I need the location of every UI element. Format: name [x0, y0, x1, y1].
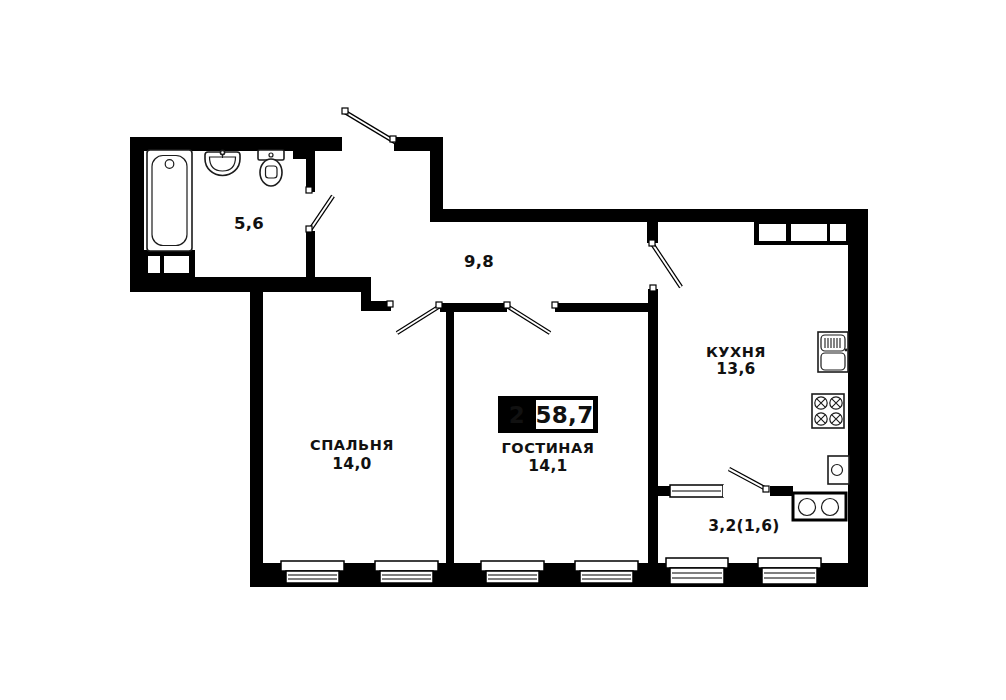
room-count: 2	[509, 402, 525, 428]
door-hinge	[306, 226, 312, 232]
bedroom-name: СПАЛЬНЯ	[310, 437, 394, 453]
bedroom-door	[387, 301, 442, 333]
window	[575, 561, 638, 583]
kitchen-balcony-window	[670, 485, 770, 497]
window	[375, 561, 438, 583]
vent-shaft-bathroom	[143, 250, 195, 278]
kitchen-sink-icon	[818, 332, 848, 372]
wall-hall-bottom-right	[555, 303, 658, 312]
wall-top-exterior	[430, 209, 868, 222]
floor-plan: 2 58,7 5,6 9,8 СПАЛЬНЯ 14,0 ГОСТИНАЯ 14,…	[0, 0, 1006, 700]
balcony-window	[666, 558, 728, 584]
wall-room-divider	[446, 303, 454, 587]
bedroom-area: 14,0	[332, 455, 371, 473]
wall-bathroom-left	[130, 137, 144, 292]
door-hinge	[763, 486, 769, 492]
balcony-area: 3,2(1,6)	[708, 517, 779, 535]
living-room-name: ГОСТИНАЯ	[502, 440, 595, 456]
sink-icon	[205, 150, 240, 175]
room-label-balcony: 3,2(1,6)	[708, 517, 779, 535]
room-label-hallway: 9,8	[464, 252, 494, 271]
entrance-door	[342, 108, 396, 142]
total-area-badge: 2 58,7	[498, 396, 598, 433]
bathroom-area: 5,6	[234, 214, 264, 233]
balcony-window	[758, 558, 821, 584]
room-label-living-room: ГОСТИНАЯ 14,1	[502, 440, 595, 475]
wall-left-exterior	[250, 277, 263, 587]
wall-bath-lower	[306, 231, 315, 279]
living-room-door	[504, 302, 558, 333]
wall-bathroom-top	[130, 137, 342, 151]
hallway-area: 9,8	[464, 252, 494, 271]
room-label-kitchen: КУХНЯ 13,6	[706, 344, 766, 378]
room-label-bathroom: 5,6	[234, 214, 264, 233]
vent-shaft-kitchen	[754, 222, 848, 245]
kitchen-door	[649, 240, 681, 291]
door-hinge	[436, 302, 442, 308]
water-heater-icon	[828, 456, 849, 484]
bathroom-door	[306, 187, 333, 232]
door-hinge	[390, 136, 396, 142]
wall-bath-upper	[306, 150, 315, 192]
kitchen-area: 13,6	[716, 360, 755, 378]
kitchen-name: КУХНЯ	[706, 344, 766, 360]
wall-kitchen-divider	[648, 289, 658, 587]
window	[481, 561, 544, 583]
door-hinge	[504, 302, 510, 308]
washing-machine-icon	[793, 493, 846, 520]
door-hinge	[649, 240, 655, 246]
toilet-icon	[258, 150, 284, 186]
living-room-area: 14,1	[528, 457, 567, 475]
wall-right-exterior	[848, 209, 868, 587]
total-area: 58,7	[536, 402, 594, 428]
bathtub-icon	[147, 150, 192, 251]
window	[281, 561, 344, 583]
wall-bath-stub	[293, 150, 307, 159]
room-label-bedroom: СПАЛЬНЯ 14,0	[310, 437, 394, 473]
stove-icon	[812, 394, 844, 428]
